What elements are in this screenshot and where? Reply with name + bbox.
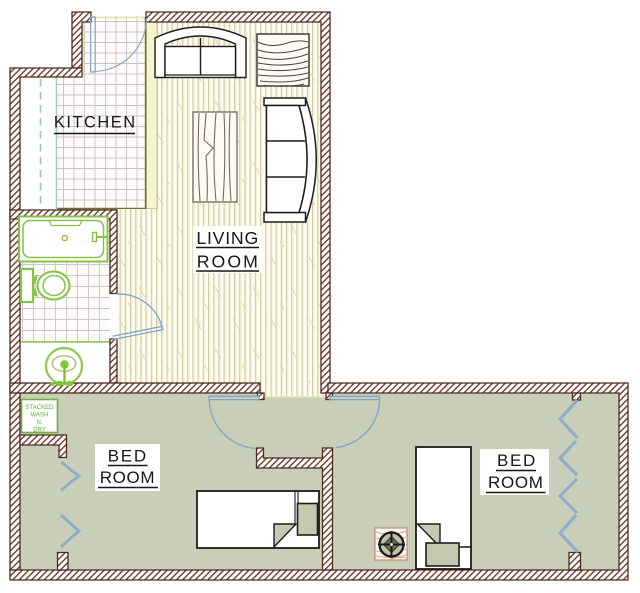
- svg-text:N.: N.: [37, 420, 43, 426]
- svg-text:KITCHEN: KITCHEN: [54, 113, 137, 131]
- svg-text:DRY: DRY: [33, 428, 46, 434]
- svg-text:WASH: WASH: [31, 413, 49, 419]
- svg-text:LIVING: LIVING: [196, 228, 259, 248]
- svg-text:ROOM: ROOM: [197, 251, 260, 271]
- svg-text:ROOM: ROOM: [100, 468, 156, 487]
- svg-text:ROOM: ROOM: [488, 473, 544, 492]
- svg-text:BED: BED: [497, 451, 537, 470]
- svg-text:STACKED: STACKED: [26, 405, 55, 411]
- svg-text:BED: BED: [108, 446, 148, 465]
